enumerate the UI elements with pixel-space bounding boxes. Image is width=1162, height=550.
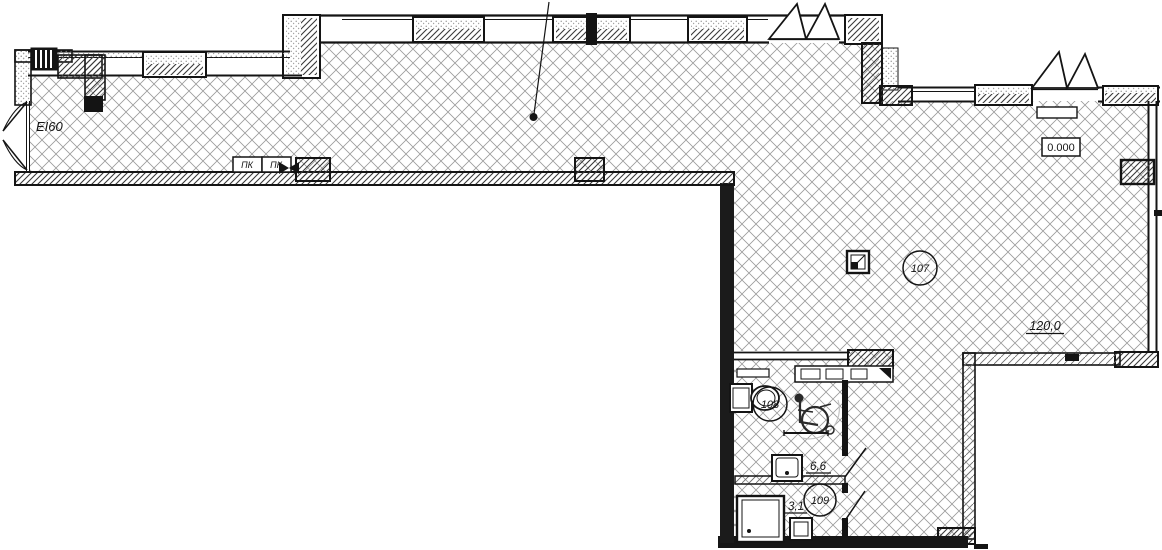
wall-corner-pier bbox=[845, 15, 882, 44]
wall-sill-block bbox=[1115, 352, 1158, 367]
floor-drain bbox=[790, 518, 812, 540]
room-107-area: 120,0 bbox=[1026, 319, 1064, 334]
room-109-area: 3,1 bbox=[784, 501, 807, 513]
wall-pier bbox=[296, 158, 330, 181]
door-swing-icon bbox=[1032, 52, 1067, 88]
room-number: 109 bbox=[811, 495, 829, 507]
wall-pier bbox=[1121, 160, 1154, 184]
wall-tick bbox=[1154, 210, 1162, 216]
area-label: 120,0 bbox=[1029, 319, 1060, 333]
mullion bbox=[586, 13, 597, 45]
shower-tray bbox=[737, 496, 784, 542]
door-threshold bbox=[1037, 107, 1077, 118]
fire-hydrant-box: ПК bbox=[233, 157, 262, 172]
elevation-label: 0.000 bbox=[1047, 142, 1075, 154]
entrance-door-west bbox=[3, 101, 30, 171]
door-jamb bbox=[84, 96, 103, 112]
door-swing-icon bbox=[1067, 54, 1098, 88]
column-symbol bbox=[847, 251, 869, 273]
area-label: 3,1 bbox=[788, 501, 804, 513]
shelf bbox=[737, 369, 769, 377]
wall-detail bbox=[1065, 354, 1079, 361]
door-swing-icon bbox=[3, 140, 27, 170]
sink-counter bbox=[795, 366, 893, 382]
fire-hydrant-box: ПК bbox=[262, 157, 291, 172]
door-swing-icon bbox=[769, 4, 806, 39]
window-pier bbox=[143, 52, 206, 77]
floor-area bbox=[30, 43, 1149, 537]
hydrant-label: ПК bbox=[241, 160, 254, 170]
north-wall-lower-right bbox=[898, 85, 1160, 105]
door-swing-icon bbox=[3, 102, 27, 131]
window-pier bbox=[553, 13, 630, 45]
window-pier bbox=[688, 17, 747, 42]
wall-corner-block bbox=[1103, 86, 1158, 105]
room-number: 108 bbox=[761, 399, 780, 411]
sink-fixture bbox=[772, 455, 802, 481]
wall-pier bbox=[575, 158, 604, 181]
elevation-marker: 0.000 bbox=[1042, 138, 1080, 156]
room-number: 107 bbox=[911, 263, 930, 275]
door-rating-label: EI60 bbox=[36, 119, 64, 134]
cutout-walls bbox=[938, 353, 1120, 549]
wall-corner-block bbox=[283, 15, 320, 78]
west-wall-extension bbox=[720, 183, 734, 543]
north-wall-step bbox=[862, 43, 912, 105]
window-pier bbox=[975, 85, 1032, 105]
door-swing-icon bbox=[806, 4, 839, 39]
window-pier bbox=[413, 17, 484, 42]
floor-hatch-region bbox=[30, 43, 1149, 537]
floor-plan-svg: ПК ПК bbox=[0, 0, 1162, 550]
grille-icon bbox=[31, 48, 57, 70]
entrance-door-north bbox=[769, 4, 839, 40]
area-label: 6,6 bbox=[810, 461, 827, 473]
